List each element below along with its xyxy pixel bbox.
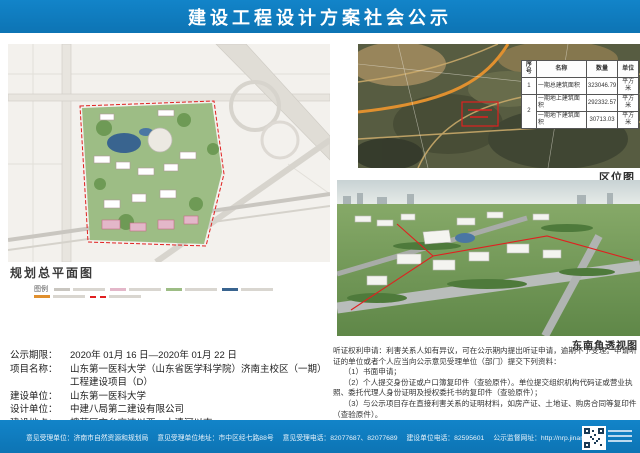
- site-plan-drawing: [8, 44, 330, 262]
- site-plan-label: 规划总平面图: [10, 264, 94, 281]
- cell-no: 2: [522, 95, 537, 129]
- legend-item: [34, 295, 85, 298]
- info-value: 山东第一医科大学（山东省医学科学院）济南主校区（一期）工程建设项目（D）: [70, 363, 330, 390]
- footer-accepting-unit: 意见受理单位：济南市自然资源和规划局: [26, 432, 148, 442]
- cell-qty: 30713.03: [586, 112, 617, 129]
- col-qty: 数量: [586, 61, 617, 78]
- info-value: 山东第一医科大学: [70, 390, 330, 404]
- public-notice-poster: 建设工程设计方案社会公示: [0, 0, 640, 453]
- footer-phone: 意见受理电话：82077687、82077689: [283, 432, 398, 442]
- hearing-paragraph: （3）与公示项目存在直接利害关系的证明材料，如房产证、土地证、购房合同等复印件（…: [333, 399, 637, 420]
- qr-caption-lines: [608, 430, 632, 445]
- cell-unit: 平方米: [618, 95, 639, 112]
- header-banner: 建设工程设计方案社会公示: [0, 0, 640, 33]
- legend-title: 图例: [34, 284, 48, 294]
- table-row: 一期地下建筑面积 30713.03 平方米: [522, 112, 639, 129]
- legend-item: [166, 288, 217, 291]
- rendering-image: [337, 180, 640, 336]
- cell-name: 一期总建筑面积: [536, 78, 586, 95]
- perspective-rendering: [337, 180, 640, 336]
- cell-no: 1: [522, 78, 537, 95]
- table-row: 2 一期地上建筑面积 292332.57 平方米: [522, 95, 639, 112]
- table-row: 1 一期总建筑面积 323046.79 平方米: [522, 78, 639, 95]
- legend-item: [222, 288, 273, 291]
- info-label: 建设单位：: [10, 390, 70, 404]
- info-row-owner: 建设单位： 山东第一医科大学: [10, 390, 330, 404]
- info-label: 公示期限：: [10, 349, 70, 363]
- info-row-project-name: 项目名称： 山东第一医科大学（山东省医学科学院）济南主校区（一期）工程建设项目（…: [10, 363, 330, 390]
- col-name: 名称: [536, 61, 586, 78]
- info-row-period: 公示期限： 2020年 01月 16 日—2020年 01月 22 日: [10, 349, 330, 363]
- footer-contact-items: 意见受理单位：济南市自然资源和规划局 意见受理单位地址：市中区经七路88号 意见…: [26, 432, 614, 442]
- building-area-table: 序号 名称 数量 单位 1 一期总建筑面积 323046.79 平方米 2 一期…: [521, 60, 639, 129]
- cell-unit: 平方米: [618, 78, 639, 95]
- hearing-paragraph: （1）书面申请；: [333, 367, 637, 378]
- qr-code: [582, 426, 606, 450]
- page-title: 建设工程设计方案社会公示: [188, 4, 452, 30]
- footer-address: 意见受理单位地址：市中区经七路88号: [157, 432, 273, 442]
- legend-item: [54, 288, 105, 291]
- hearing-paragraph: 听证权利申请：利害关系人如有异议，可在公示期内提出听证申请，逾期不予受理。申请听…: [333, 346, 637, 367]
- cell-name: 一期地下建筑面积: [536, 112, 586, 129]
- cell-unit: 平方米: [618, 112, 639, 129]
- col-unit: 单位: [618, 61, 639, 78]
- info-label: 设计单位：: [10, 403, 70, 417]
- site-plan-legend: 图例: [34, 284, 324, 299]
- cell-name: 一期地上建筑面积: [536, 95, 586, 112]
- info-row-designer: 设计单位： 中建八局第二建设有限公司: [10, 403, 330, 417]
- cell-qty: 323046.79: [586, 78, 617, 95]
- info-value: 2020年 01月 16 日—2020年 01月 22 日: [70, 349, 330, 363]
- cell-qty: 292332.57: [586, 95, 617, 112]
- footer-bar: 意见受理单位：济南市自然资源和规划局 意见受理单位地址：市中区经七路88号 意见…: [0, 420, 640, 453]
- site-plan-map: [8, 44, 330, 262]
- info-value: 中建八局第二建设有限公司: [70, 403, 330, 417]
- info-label: 项目名称：: [10, 363, 70, 390]
- project-info: 公示期限： 2020年 01月 16 日—2020年 01月 22 日 项目名称…: [10, 349, 330, 430]
- table-header-row: 序号 名称 数量 单位: [522, 61, 639, 78]
- hearing-paragraph: （2）个人提交身份证或户口簿复印件（查验原件）。单位提交组织机构代码证或营业执照…: [333, 378, 637, 399]
- legend-item: [110, 288, 161, 291]
- footer-builder-phone: 建设单位电话：82595601: [407, 432, 485, 442]
- col-no: 序号: [522, 61, 537, 78]
- legend-item: [90, 295, 141, 298]
